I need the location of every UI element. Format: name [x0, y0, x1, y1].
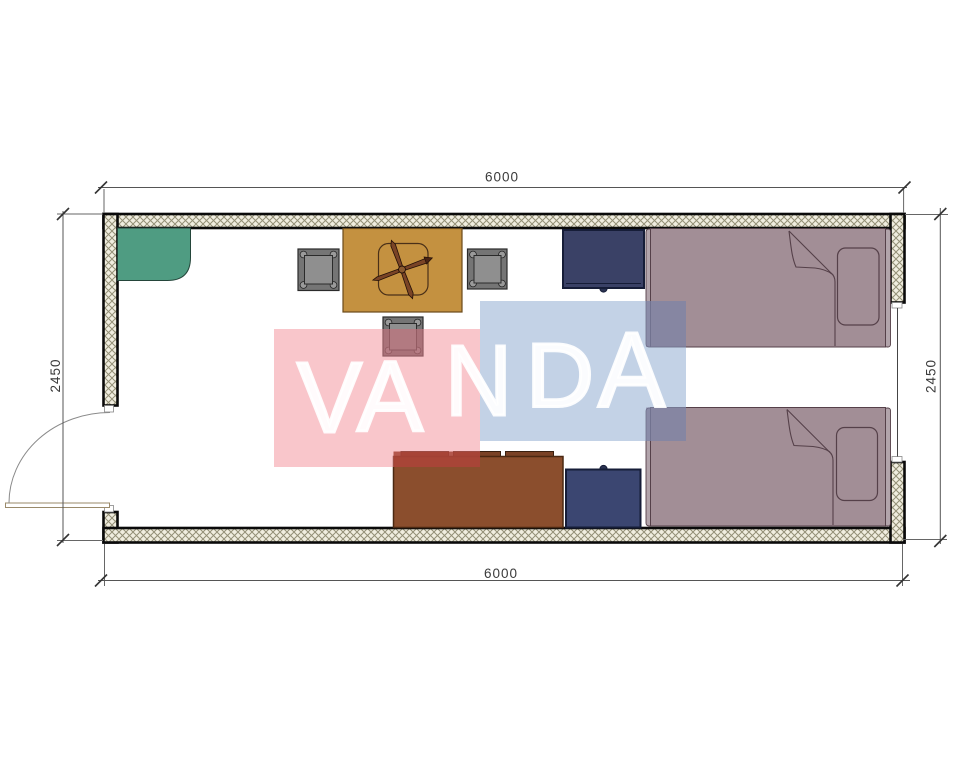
svg-text:2450: 2450 [48, 358, 63, 392]
svg-text:A: A [357, 341, 423, 453]
svg-text:D: D [526, 326, 594, 427]
svg-text:6000: 6000 [484, 566, 518, 581]
svg-text:2450: 2450 [924, 359, 939, 393]
svg-text:6000: 6000 [485, 170, 519, 185]
svg-text:V: V [297, 342, 362, 454]
svg-text:A: A [598, 310, 666, 430]
svg-text:N: N [445, 325, 512, 437]
